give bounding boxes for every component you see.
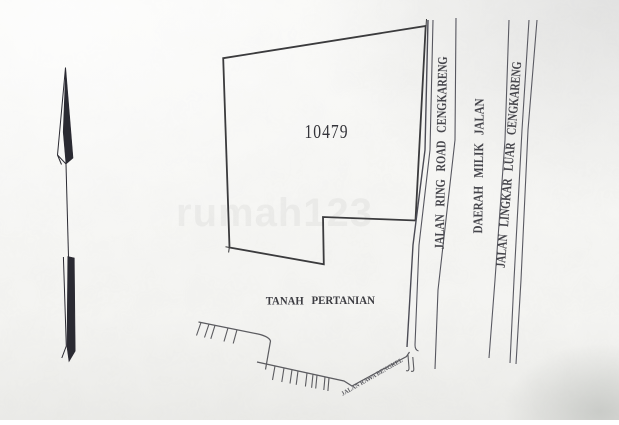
svg-text:DAERAH MILIK JALAN: DAERAH MILIK JALAN xyxy=(470,98,487,233)
svg-text:rumah123: rumah123 xyxy=(176,191,373,235)
svg-text:PERTANIAN: PERTANIAN xyxy=(312,293,376,307)
svg-text:10479: 10479 xyxy=(304,120,348,142)
svg-text:TANAH: TANAH xyxy=(266,294,304,308)
